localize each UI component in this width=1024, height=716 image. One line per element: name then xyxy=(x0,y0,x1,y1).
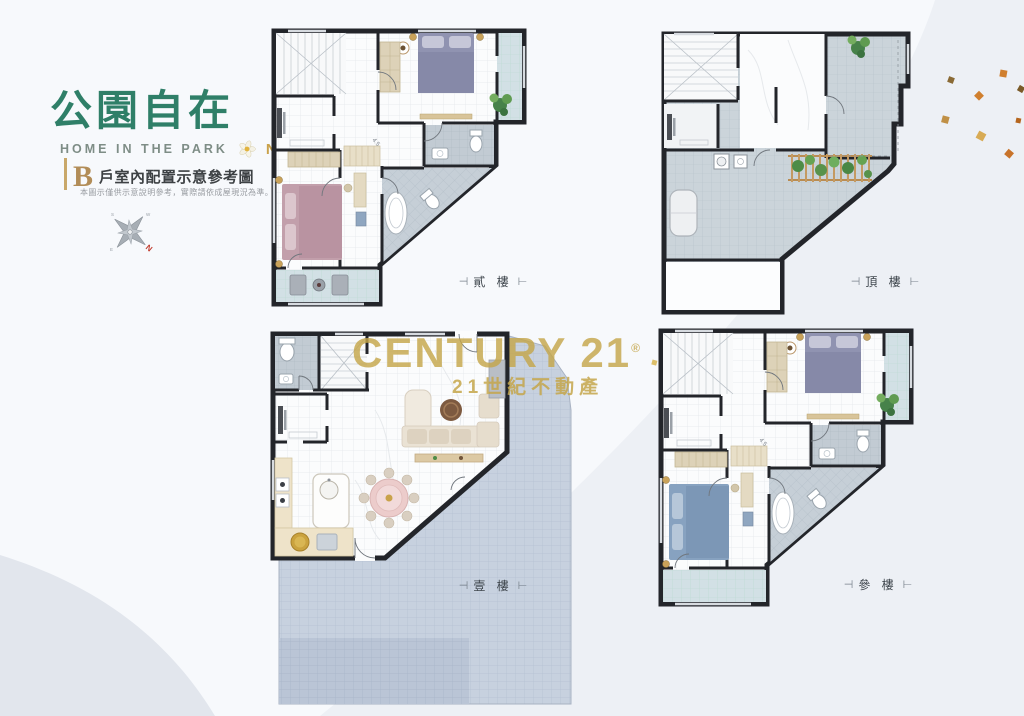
open-void xyxy=(666,262,780,310)
brand-subtitle: HOME IN THE PARK xyxy=(60,142,228,156)
floor-label-first: ⊣ 壹 樓 ⊢ xyxy=(448,577,538,594)
compass-east-label: E xyxy=(110,247,113,252)
closet xyxy=(675,452,727,467)
brand-title: 公園自在 xyxy=(50,90,234,132)
gold-bar xyxy=(64,158,67,190)
floor-label-third: ⊣ 參 樓 ⊢ xyxy=(833,576,923,593)
poster-page: 公園自在 HOME IN THE PARK NO.5 B 戶室內配置示意參考圖 … xyxy=(0,0,1024,716)
bathtub xyxy=(772,492,794,534)
century21-watermark-sub: 21世紀不動產 xyxy=(452,372,603,399)
staircase xyxy=(276,33,346,94)
laundry-sink xyxy=(734,155,747,168)
compass-icon: N S W E xyxy=(102,204,158,260)
flower-icon xyxy=(235,139,259,159)
sink xyxy=(279,374,293,384)
toilet xyxy=(279,338,295,361)
yard-tiles-dark xyxy=(279,638,469,704)
laundry-cabinet xyxy=(344,146,380,166)
water-tank xyxy=(670,190,697,236)
sink xyxy=(432,148,448,159)
balcony-bottom xyxy=(663,570,766,602)
laundry-cabinet xyxy=(731,446,767,466)
bed-third xyxy=(663,477,730,568)
roof-room xyxy=(740,34,826,148)
compass-west-label: W xyxy=(146,212,151,217)
floorplan-third-floor: 4.5 xyxy=(655,328,917,613)
disclaimer-text: 本圖示僅供示意說明參考，實際請依成屋現況為準。 xyxy=(80,187,273,198)
bathroom xyxy=(811,425,881,466)
toilet xyxy=(470,130,482,152)
floor-label-second: ⊣ 貳 樓 ⊢ xyxy=(448,273,538,290)
staircase xyxy=(664,34,738,100)
registered-mark: ® xyxy=(631,341,642,355)
washing-machine xyxy=(714,154,729,169)
floorplan-second-floor: 4.5 xyxy=(268,28,530,313)
utility-room xyxy=(664,104,718,148)
wardrobe xyxy=(380,42,400,92)
compass-south-label: S xyxy=(111,212,114,217)
bathtub xyxy=(385,192,407,234)
kitchen-sink xyxy=(317,534,337,550)
wardrobe xyxy=(767,342,787,392)
floor-label-roof: ⊣ 頂 樓 ⊢ xyxy=(840,273,930,290)
closet xyxy=(288,152,340,167)
bathroom xyxy=(424,125,494,166)
bed-second xyxy=(276,177,343,268)
dining-table xyxy=(359,468,419,528)
toilet xyxy=(857,430,869,452)
sink xyxy=(819,448,835,459)
tv-console xyxy=(415,454,483,462)
century21-watermark: CENTURY 21® xyxy=(352,329,692,377)
unit-letter: B xyxy=(73,163,93,190)
